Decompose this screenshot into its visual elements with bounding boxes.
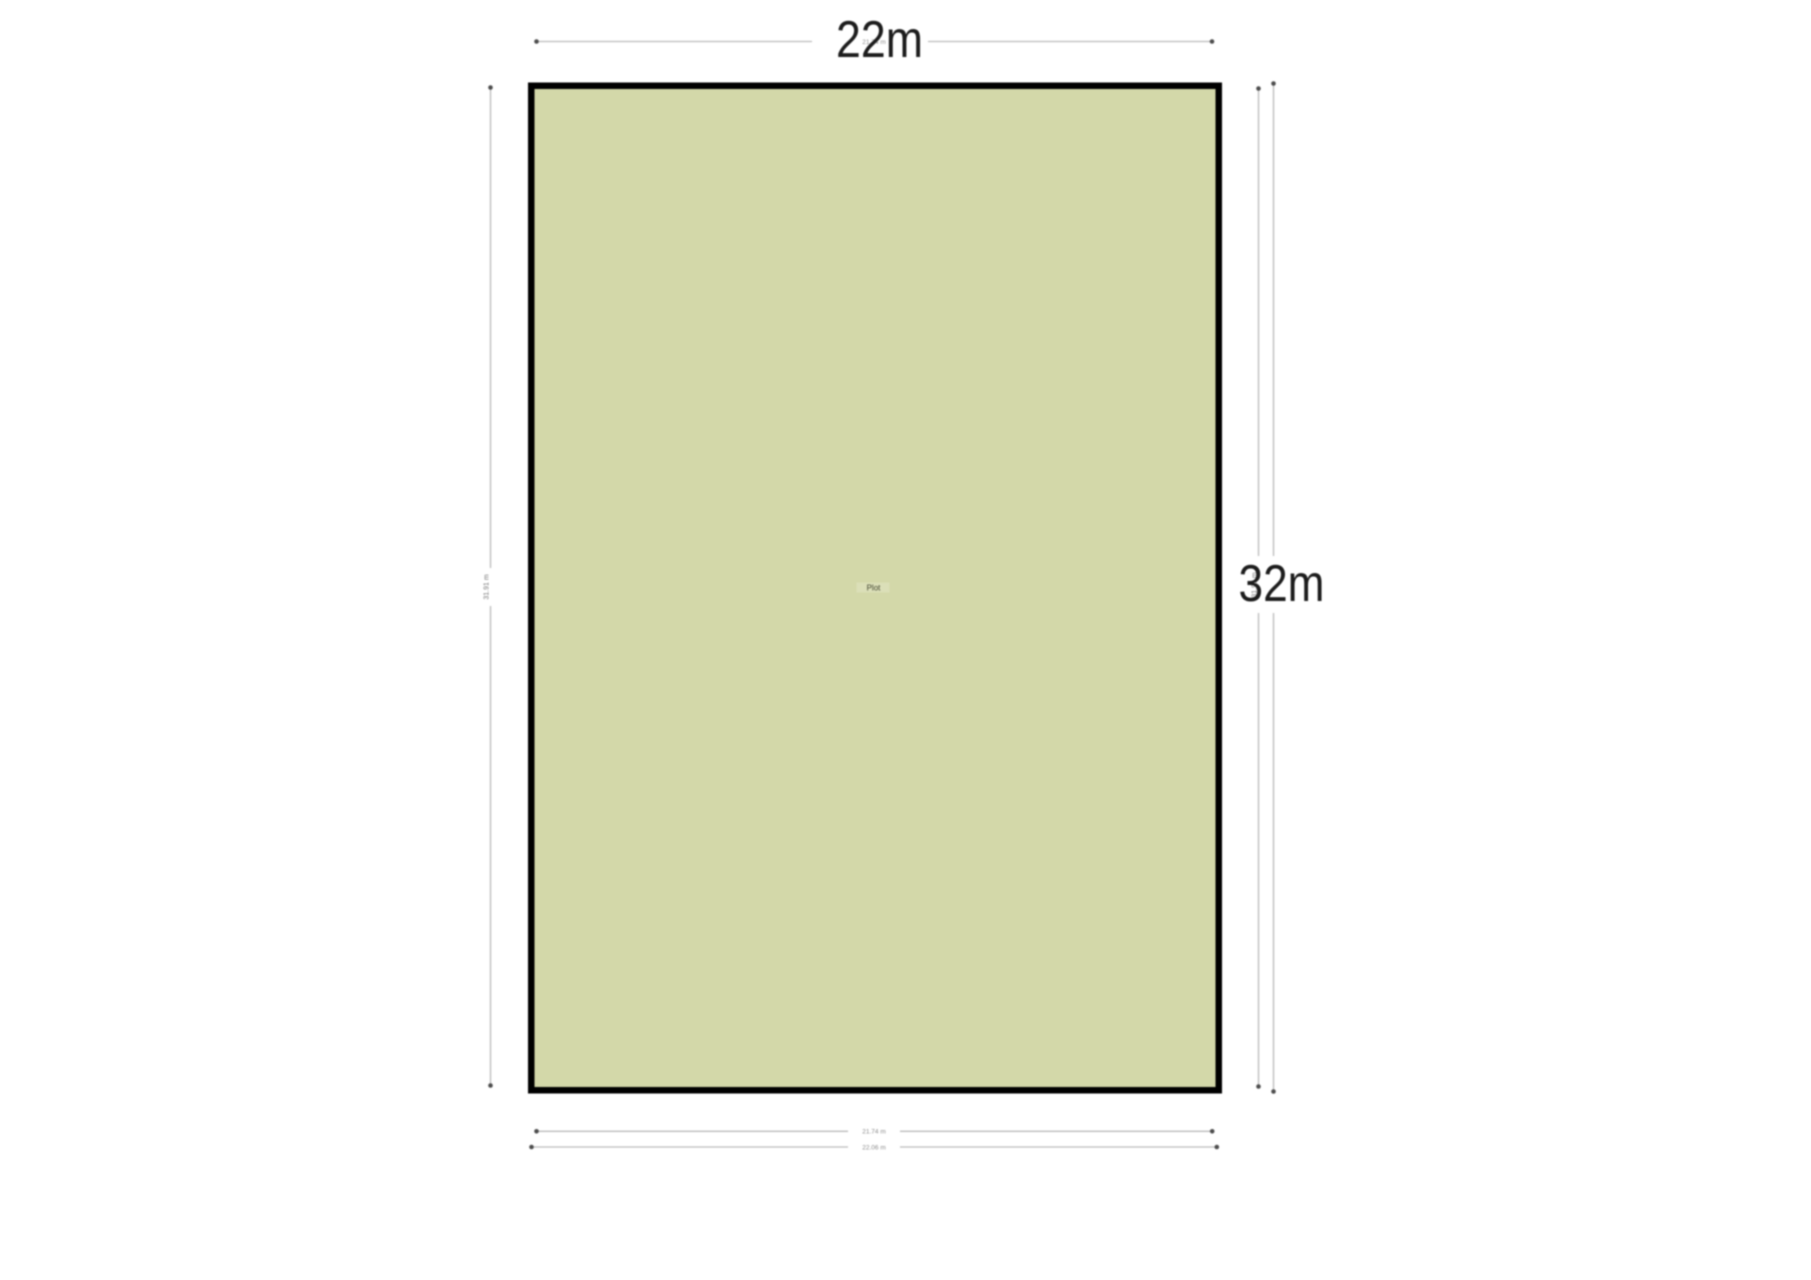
svg-text:31.91 m: 31.91 m xyxy=(483,574,490,599)
svg-text:Plot: Plot xyxy=(867,584,882,593)
svg-text:21.74 m: 21.74 m xyxy=(862,1129,886,1136)
svg-text:22.06 m: 22.06 m xyxy=(862,1144,886,1151)
svg-text:32m: 32m xyxy=(1239,554,1325,612)
svg-text:22m: 22m xyxy=(836,10,923,68)
